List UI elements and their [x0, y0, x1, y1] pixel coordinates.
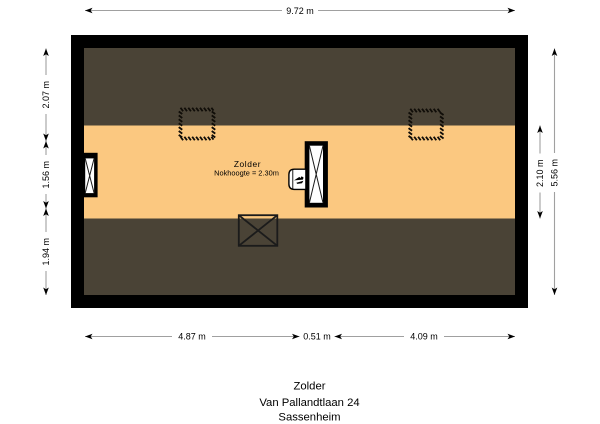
svg-text:Nokhoogte = 2.30m: Nokhoogte = 2.30m	[214, 169, 279, 178]
svg-text:4.09 m: 4.09 m	[410, 332, 438, 342]
svg-text:2.10 m: 2.10 m	[535, 160, 545, 188]
svg-text:4.87 m: 4.87 m	[178, 332, 206, 342]
svg-text:Van Pallandtlaan 24: Van Pallandtlaan 24	[259, 397, 359, 409]
svg-text:Zolder: Zolder	[234, 159, 261, 169]
svg-text:Zolder: Zolder	[293, 381, 325, 393]
svg-text:5.56 m: 5.56 m	[549, 159, 559, 187]
svg-text:9.72 m: 9.72 m	[286, 6, 314, 16]
svg-text:2.07 m: 2.07 m	[41, 81, 51, 109]
svg-text:1.56 m: 1.56 m	[41, 161, 51, 189]
svg-text:1.94 m: 1.94 m	[41, 238, 51, 266]
svg-text:Sassenheim: Sassenheim	[278, 412, 340, 424]
svg-text:0.51 m: 0.51 m	[303, 332, 331, 342]
